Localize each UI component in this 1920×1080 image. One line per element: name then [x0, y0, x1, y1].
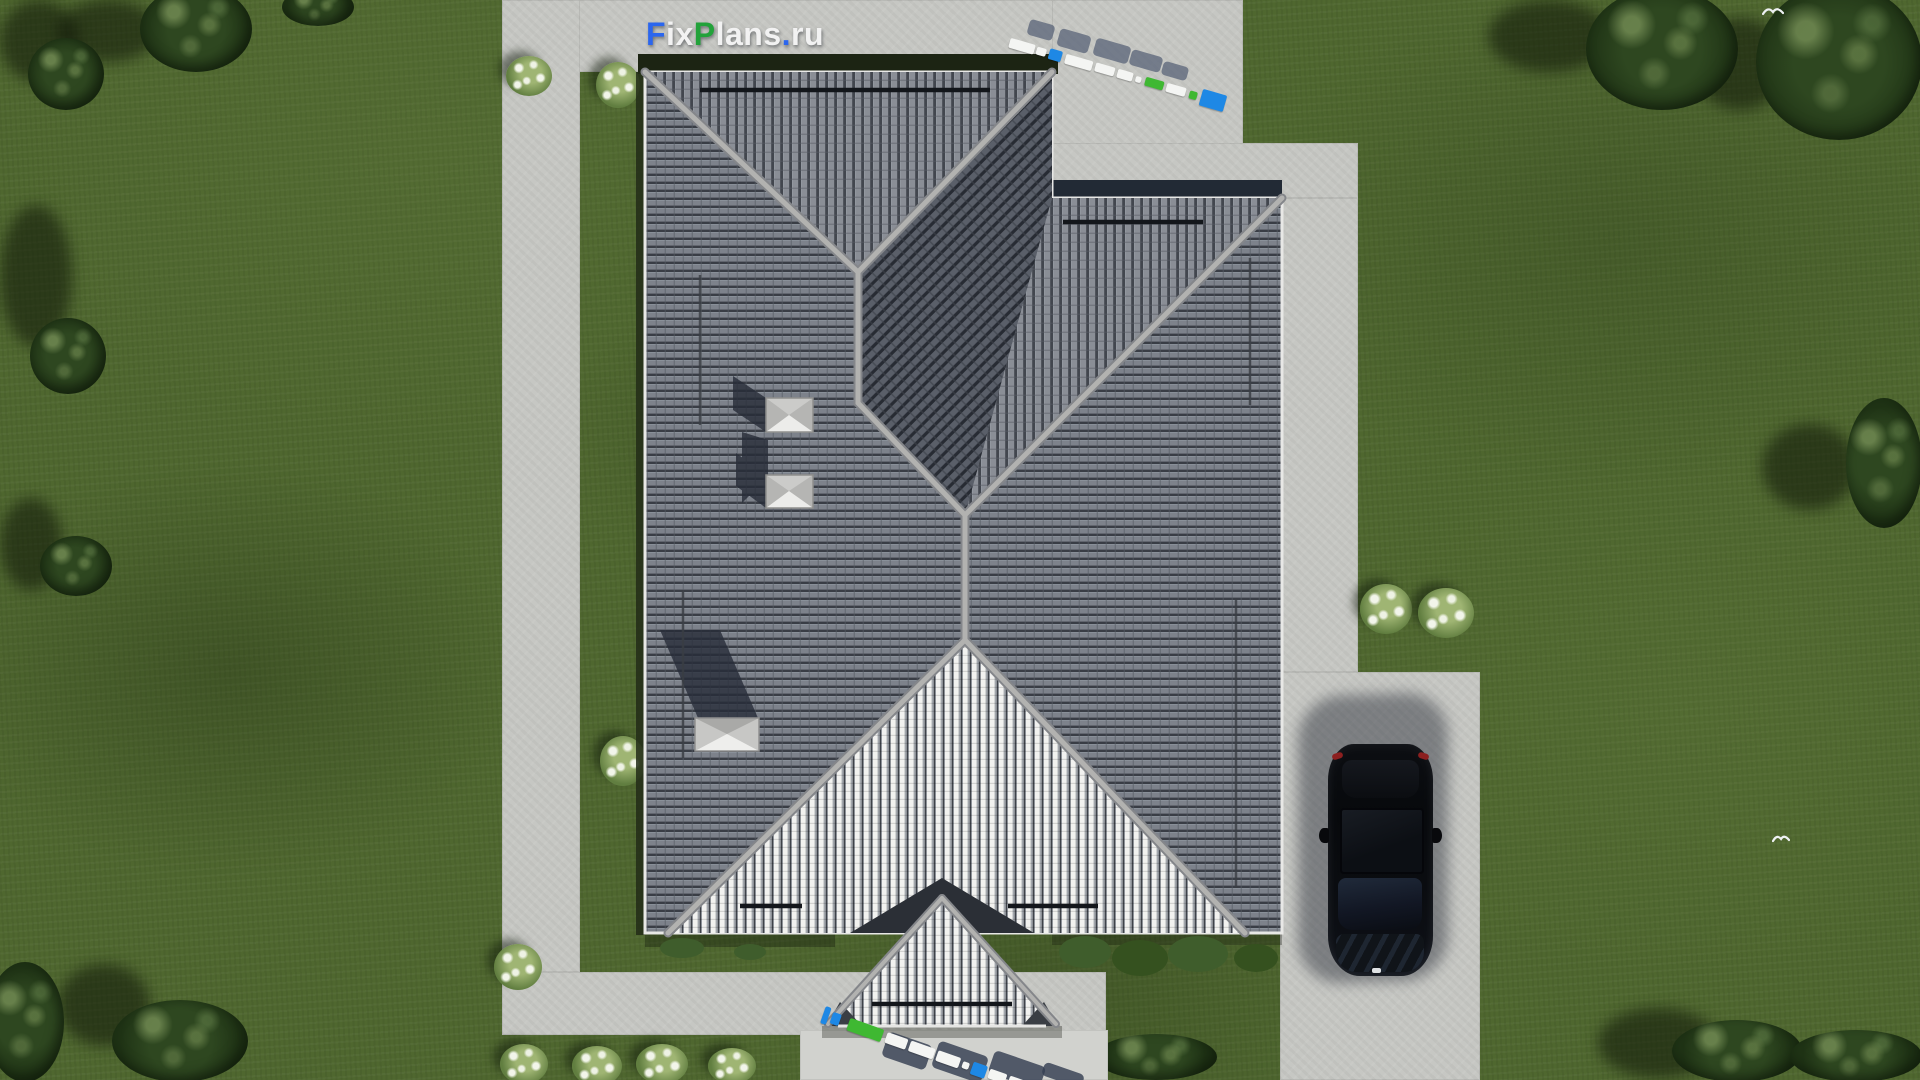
bird-icon	[1762, 4, 1784, 18]
aerial-house-site-render: FixPlans.ru	[0, 0, 1920, 1080]
side-mirror-right	[1432, 828, 1442, 843]
rear-window	[1342, 760, 1419, 798]
fixplans-watermark: FixPlans.ru	[646, 16, 824, 53]
logo3d-segment	[1116, 69, 1134, 82]
hood	[1336, 934, 1424, 972]
logo3d-segment	[829, 1012, 841, 1026]
chimney	[695, 718, 759, 751]
car-body	[1328, 744, 1433, 976]
logo3d-segment	[1048, 48, 1064, 62]
watermark-lans: lans	[716, 16, 782, 52]
watermark-ru: ru	[791, 16, 824, 52]
watermark-p: P	[694, 16, 716, 52]
logo3d-segment	[961, 1061, 970, 1070]
logo3d-segment	[1188, 90, 1198, 100]
windshield	[1338, 878, 1422, 930]
logo3d-segment	[935, 1050, 961, 1068]
logo3d-segment	[970, 1061, 988, 1078]
watermark-dot: .	[782, 16, 791, 52]
watermark-ix: ix	[666, 16, 694, 52]
sunroof	[1340, 808, 1424, 874]
house-roof	[0, 0, 1920, 1080]
logo3d-segment	[1035, 46, 1047, 56]
logo3d-segment	[987, 1069, 1007, 1080]
logo3d-segment	[1008, 37, 1036, 54]
car	[1290, 688, 1490, 988]
watermark-f: F	[646, 16, 666, 52]
bird-icon	[1772, 832, 1790, 844]
logo3d-segment	[1165, 83, 1187, 97]
logo3d-segment	[1135, 75, 1142, 82]
side-mirror-left	[1319, 828, 1329, 843]
logo3d-segment	[884, 1032, 908, 1050]
roof-planes	[645, 72, 1282, 933]
logo3d-segment	[1144, 77, 1165, 91]
logo3d-segment	[1094, 62, 1116, 76]
front-badge	[1372, 968, 1381, 973]
logo3d-segment	[1064, 53, 1094, 70]
